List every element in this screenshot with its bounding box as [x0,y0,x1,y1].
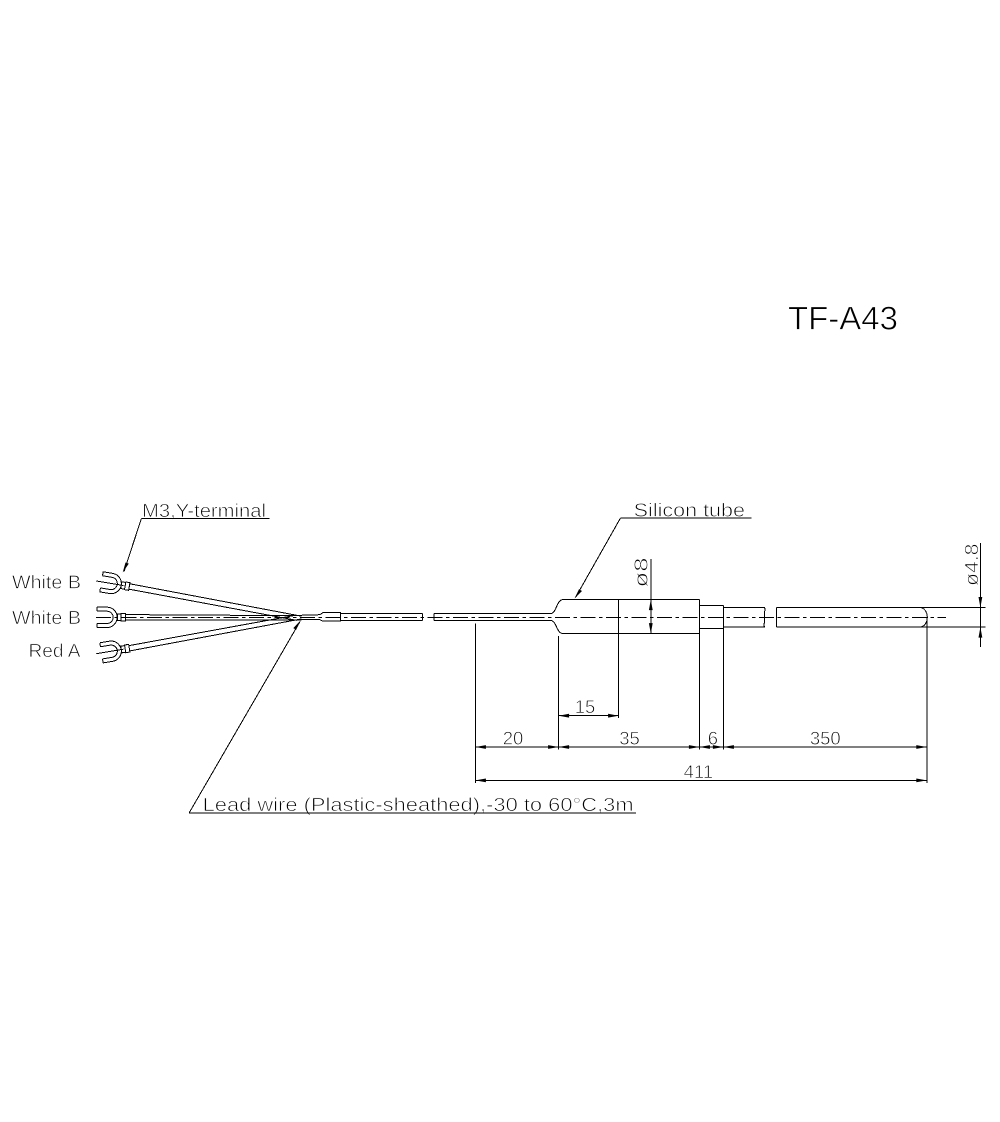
svg-text:6: 6 [708,728,718,749]
svg-text:White B: White B [12,608,81,629]
svg-text:Red A: Red A [29,641,81,662]
svg-text:TF-A43: TF-A43 [788,300,898,337]
svg-text:35: 35 [619,728,640,749]
svg-text:ø8: ø8 [632,558,653,588]
svg-text:15: 15 [575,696,596,717]
svg-text:411: 411 [684,761,714,782]
svg-text:350: 350 [810,728,841,749]
svg-text:20: 20 [503,728,524,749]
svg-text:White B: White B [12,573,81,594]
svg-text:ø4.8: ø4.8 [962,544,983,587]
